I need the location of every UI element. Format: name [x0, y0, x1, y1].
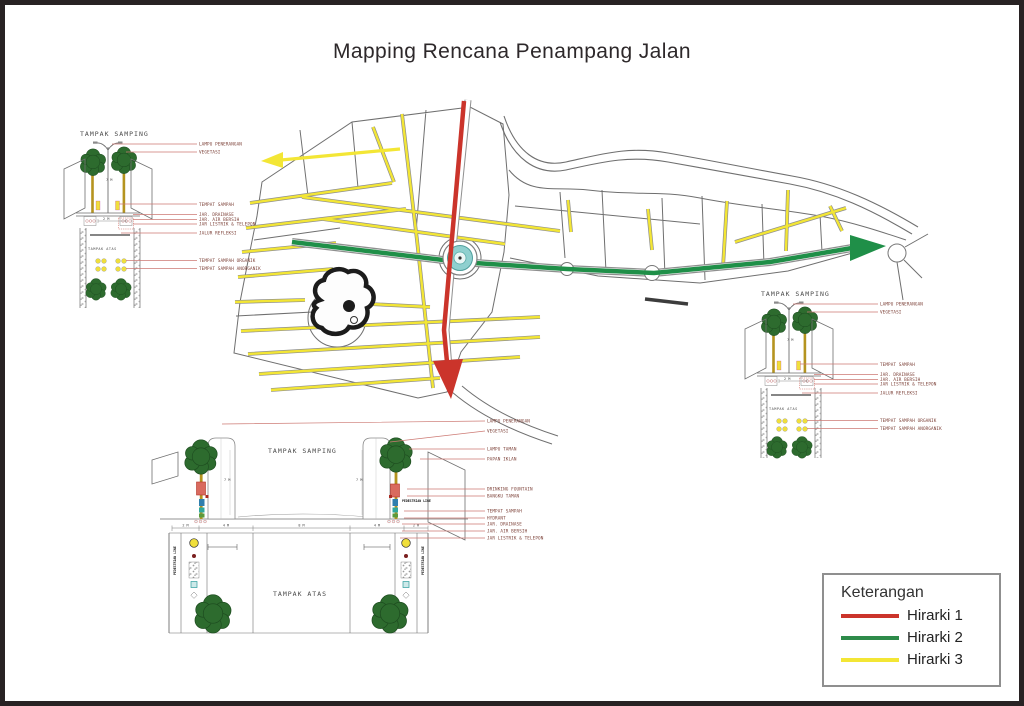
dimension-line-vertical — [230, 450, 362, 515]
callout-label: LAMPU TAMAN — [487, 447, 517, 453]
pebble-strip — [762, 388, 767, 458]
section-title: TAMPAK SAMPING — [761, 290, 830, 298]
callout-label: VEGETASI — [199, 150, 221, 156]
pebble-strip — [81, 228, 86, 308]
trash-bin — [797, 361, 801, 370]
plan-tree — [792, 437, 812, 459]
lamp-head — [774, 302, 779, 304]
plan-title: TAMPAK ATAS — [273, 590, 327, 598]
callout-label: VEGETASI — [487, 429, 509, 435]
billboard — [197, 482, 206, 495]
hirarki-2-route — [292, 242, 852, 273]
plan-brackets — [208, 544, 390, 550]
tree-trunk — [123, 170, 126, 213]
section-title: TAMPAK SAMPING — [80, 130, 149, 138]
callout-label: LAMPU PENERANGAN — [487, 419, 530, 425]
section-top-left: TAMPAK SAMPING 7 M 2 M — [64, 130, 261, 308]
callout-label: LAMPU PENERANGAN — [880, 302, 923, 308]
legend-label: Hirarki 3 — [907, 651, 963, 668]
callout-label: JAR. AIR BERSIH — [487, 529, 528, 535]
callout-label: DRINKING FOUNTAIN — [487, 487, 533, 493]
tree-trunk — [804, 330, 807, 373]
strip-label: PEDESTRIAN LINE — [421, 546, 425, 575]
section-title: TAMPAK SAMPING — [268, 447, 337, 455]
dimension-height: 7 M — [106, 178, 112, 182]
ground-line — [76, 213, 140, 216]
dimension-pole-height: 7 M — [224, 478, 230, 482]
end-roundabout — [888, 244, 906, 262]
callout-label: TEMPAT SAMPAH — [199, 202, 234, 208]
tree — [761, 309, 786, 336]
dimension: 4 M — [374, 524, 380, 528]
callout-label: TEMPAT SAMPAH ORGANIK — [199, 258, 256, 264]
section-right: TAMPAK SAMPING 7 M 2 M — [745, 290, 942, 458]
dimension: 2 M — [182, 524, 188, 528]
plan-title: TAMPAK ATAS — [769, 407, 798, 411]
dimension: 8 M — [298, 524, 304, 528]
plan-tree — [86, 279, 106, 301]
legend-swatch-hirarki2 — [841, 635, 899, 641]
strip-label: PEDESTRIAN LINE — [173, 546, 177, 575]
lake-island — [343, 300, 355, 312]
callout-label: PAPAN IKLAN — [487, 457, 517, 463]
road-crown — [238, 514, 368, 517]
site-map — [234, 100, 928, 444]
hirarki-3-arrowhead — [261, 152, 283, 168]
plan-tree — [767, 437, 787, 459]
plan-tree — [372, 595, 408, 633]
road-plane — [152, 452, 178, 484]
callout-label: JAR LISTRIK & TELEPON — [199, 222, 256, 228]
leader-lines — [222, 421, 485, 538]
plan-tree — [111, 279, 131, 301]
lamp-head — [799, 302, 804, 304]
plan-tree — [195, 595, 231, 633]
legend-swatch-hirarki3 — [841, 657, 899, 663]
callout-label: BANGKU TAMAN — [487, 494, 520, 500]
plan-symbols-right — [401, 539, 411, 599]
callout-label: JAR. DRAINASE — [487, 522, 522, 528]
legend: Keterangan Hirarki 1 Hirarki 2 Hirarki 3 — [822, 573, 1001, 687]
drawing-sheet: Mapping Rencana Penampang Jalan — [0, 0, 1024, 706]
callout-label: VEGETASI — [880, 310, 902, 316]
plan-title: TAMPAK ATAS — [88, 247, 117, 251]
legend-item-hirarki2: Hirarki 2 — [841, 629, 999, 646]
pebble-strip — [134, 228, 139, 308]
plan-trash-bins — [96, 259, 127, 272]
dimension-width: 2 M — [784, 377, 790, 381]
legend-label: Hirarki 2 — [907, 629, 963, 646]
page-title: Mapping Rencana Penampang Jalan — [0, 40, 1024, 64]
dimension-pole-height: 7 M — [356, 478, 362, 482]
trash-bin — [777, 361, 781, 370]
callout-label: JAR LISTRIK & TELEPON — [880, 382, 937, 388]
callout-label: JALUR REFLEKSI — [199, 231, 237, 237]
legend-item-hirarki1: Hirarki 1 — [841, 607, 999, 624]
hirarki-2-arrowhead — [850, 235, 886, 261]
gate-bar — [645, 299, 688, 304]
ground-line — [757, 373, 821, 376]
utility-pipes — [195, 520, 400, 523]
callout-label: TEMPAT SAMPAH — [880, 362, 915, 368]
section-bottom-center: TAMPAK SAMPING 7 M 7 M — [152, 419, 544, 634]
dimension-width: 2 M — [103, 217, 109, 221]
tree — [80, 149, 105, 176]
tree-trunk — [772, 332, 775, 373]
lamp-head — [118, 142, 123, 144]
trash-bin — [96, 201, 100, 210]
dimension: 4 M — [223, 524, 229, 528]
callout-label: TEMPAT SAMPAH ANORGANIK — [880, 426, 942, 432]
plan-symbols-left — [189, 539, 199, 599]
callout-label: TEMPAT SAMPAH ORGANIK — [880, 418, 937, 424]
pebble-strip — [815, 388, 820, 458]
callout-label: LAMPU PENERANGAN — [199, 142, 242, 148]
callout-label: HYDRANT — [487, 516, 506, 522]
trash-bin — [116, 201, 120, 210]
legend-swatch-hirarki1 — [841, 613, 899, 619]
lake — [313, 269, 374, 334]
river-road — [504, 116, 918, 227]
legend-title: Keterangan — [841, 584, 999, 602]
plan-trash-bins — [777, 419, 808, 432]
lamp-head — [93, 142, 98, 144]
callout-label: JALUR REFLEKSI — [880, 391, 918, 397]
dimension-height: 7 M — [787, 338, 793, 342]
legend-item-hirarki3: Hirarki 3 — [841, 651, 999, 668]
callout-label: JAR LISTRIK & TELEPON — [487, 536, 544, 542]
callout-label: TEMPAT SAMPAH — [487, 509, 522, 515]
main-roundabout-center — [458, 256, 461, 259]
legend-label: Hirarki 1 — [907, 607, 963, 624]
callout-label: TEMPAT SAMPAH ANORGANIK — [199, 266, 261, 272]
tree-trunk — [91, 172, 94, 213]
pedestrian-line-label: PEDESTRIAN LINE — [402, 499, 431, 503]
